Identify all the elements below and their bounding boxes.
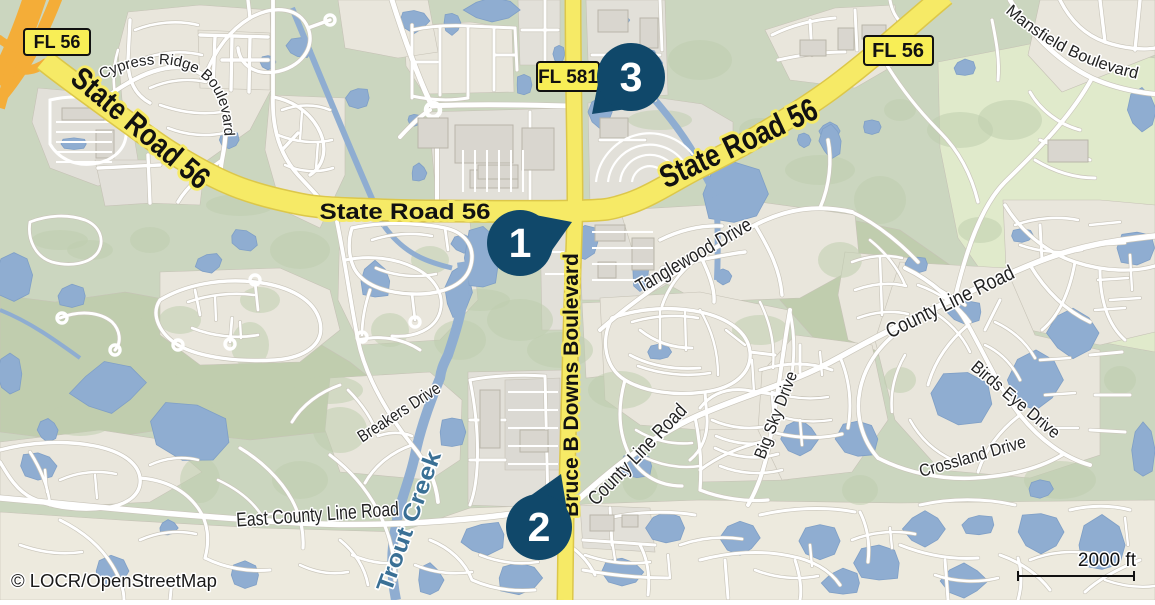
svg-text:State Road 56: State Road 56 (320, 199, 491, 224)
svg-text:2000 ft: 2000 ft (1078, 550, 1137, 571)
svg-text:FL 56: FL 56 (34, 32, 81, 52)
svg-text:2: 2 (528, 504, 551, 550)
svg-text:FL 581: FL 581 (538, 67, 598, 88)
svg-text:3: 3 (620, 54, 643, 100)
svg-text:Bruce B Downs Boulevard: Bruce B Downs Boulevard (560, 253, 583, 517)
svg-text:FL 56: FL 56 (872, 40, 924, 62)
svg-text:1: 1 (509, 220, 532, 266)
svg-text:© LOCR/OpenStreetMap: © LOCR/OpenStreetMap (11, 570, 217, 591)
